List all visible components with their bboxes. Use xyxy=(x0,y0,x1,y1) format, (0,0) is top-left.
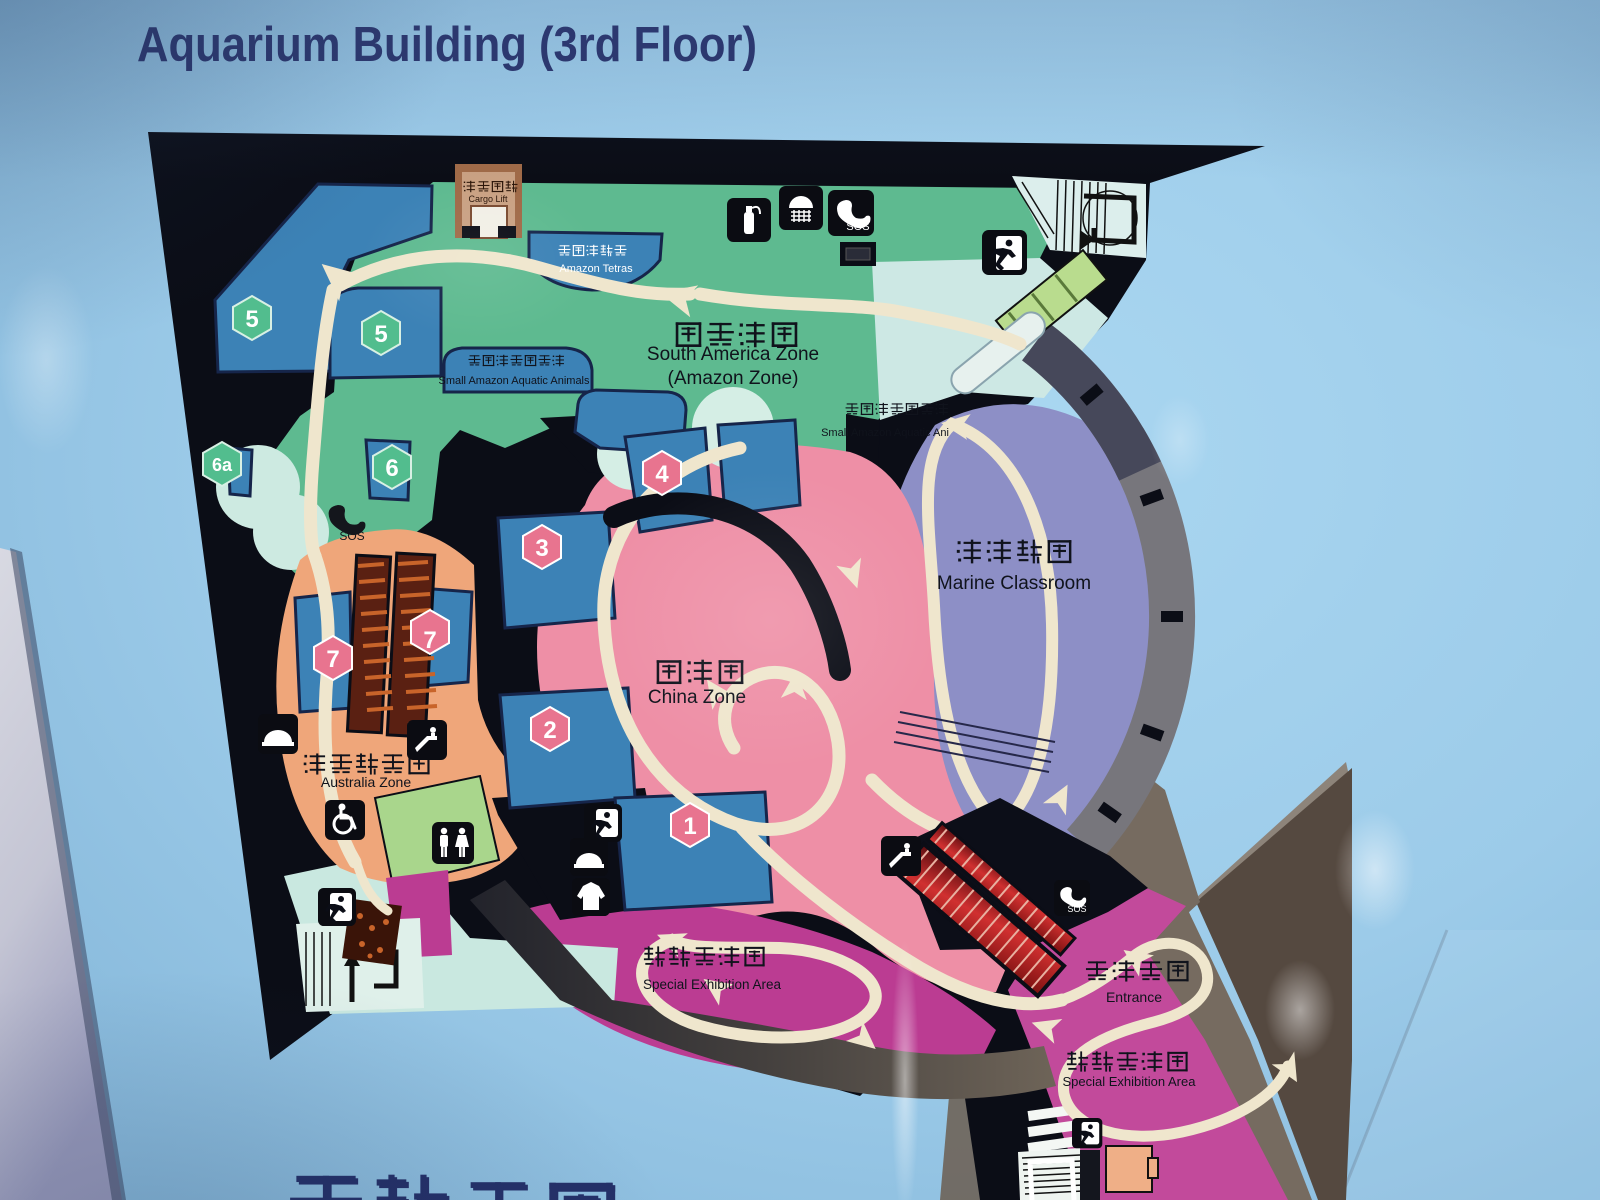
svg-text:Small Amazon Aquatic Ani: Small Amazon Aquatic Ani xyxy=(821,427,949,439)
svg-text:4: 4 xyxy=(655,461,669,488)
svg-text:South America Zone: South America Zone xyxy=(647,344,819,365)
svg-text:Australia Zone: Australia Zone xyxy=(321,774,411,790)
svg-text:Marine Classroom: Marine Classroom xyxy=(937,573,1091,594)
svg-text:5: 5 xyxy=(374,321,387,348)
svg-text:2: 2 xyxy=(543,717,556,744)
svg-text:3: 3 xyxy=(535,535,548,562)
svg-text:7: 7 xyxy=(326,646,339,673)
svg-text:6a: 6a xyxy=(212,455,233,475)
svg-text:Special Exhibition Area: Special Exhibition Area xyxy=(1063,1074,1197,1089)
svg-text:SOS: SOS xyxy=(339,529,364,543)
svg-text:7: 7 xyxy=(423,627,436,654)
svg-text:SOS: SOS xyxy=(846,221,869,233)
svg-text:1: 1 xyxy=(683,813,696,840)
svg-text:5: 5 xyxy=(245,306,258,333)
svg-text:Special Exhibition Area: Special Exhibition Area xyxy=(643,977,782,992)
svg-text:Small Amazon Aquatic Animals: Small Amazon Aquatic Animals xyxy=(438,375,590,387)
svg-text:(Amazon Zone): (Amazon Zone) xyxy=(668,368,799,389)
svg-text:Entrance: Entrance xyxy=(1106,989,1162,1005)
svg-text:SOS: SOS xyxy=(1067,904,1086,914)
svg-text:6: 6 xyxy=(385,455,398,482)
